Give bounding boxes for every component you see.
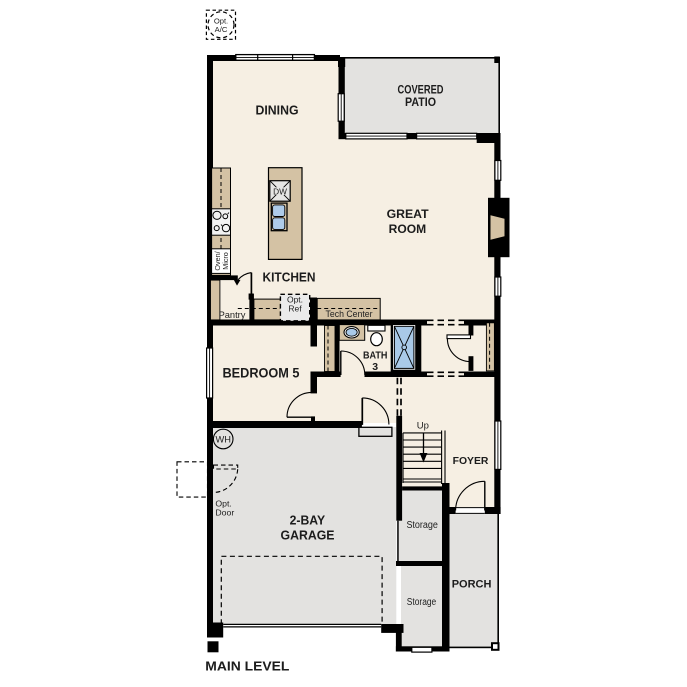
- svg-text:KITCHEN: KITCHEN: [263, 270, 316, 285]
- svg-text:Tech Center: Tech Center: [326, 309, 373, 319]
- svg-text:Opt.: Opt.: [214, 16, 228, 25]
- svg-text:Ref: Ref: [288, 304, 302, 314]
- svg-text:GARAGE: GARAGE: [281, 527, 335, 542]
- svg-text:PATIO: PATIO: [405, 97, 436, 109]
- svg-text:Storage: Storage: [407, 597, 437, 608]
- svg-text:Pantry: Pantry: [219, 310, 246, 320]
- svg-text:PORCH: PORCH: [452, 579, 492, 591]
- svg-text:WH: WH: [215, 435, 231, 445]
- svg-text:BATH: BATH: [363, 350, 388, 362]
- svg-text:MAIN LEVEL: MAIN LEVEL: [205, 659, 289, 674]
- svg-text:COVERED: COVERED: [398, 85, 444, 97]
- svg-text:2-BAY: 2-BAY: [290, 512, 326, 527]
- svg-text:Door: Door: [215, 508, 234, 518]
- svg-text:Up: Up: [417, 420, 429, 431]
- svg-text:DW: DW: [273, 187, 287, 197]
- svg-text:Storage: Storage: [406, 520, 438, 531]
- svg-text:BEDROOM 5: BEDROOM 5: [223, 365, 300, 381]
- svg-text:ROOM: ROOM: [389, 222, 427, 236]
- svg-text:3: 3: [372, 361, 378, 373]
- svg-text:DINING: DINING: [256, 103, 299, 118]
- svg-text:FOYER: FOYER: [453, 456, 489, 467]
- svg-text:Micro: Micro: [221, 252, 230, 270]
- svg-text:A/C: A/C: [215, 25, 228, 34]
- svg-text:GREAT: GREAT: [387, 207, 430, 221]
